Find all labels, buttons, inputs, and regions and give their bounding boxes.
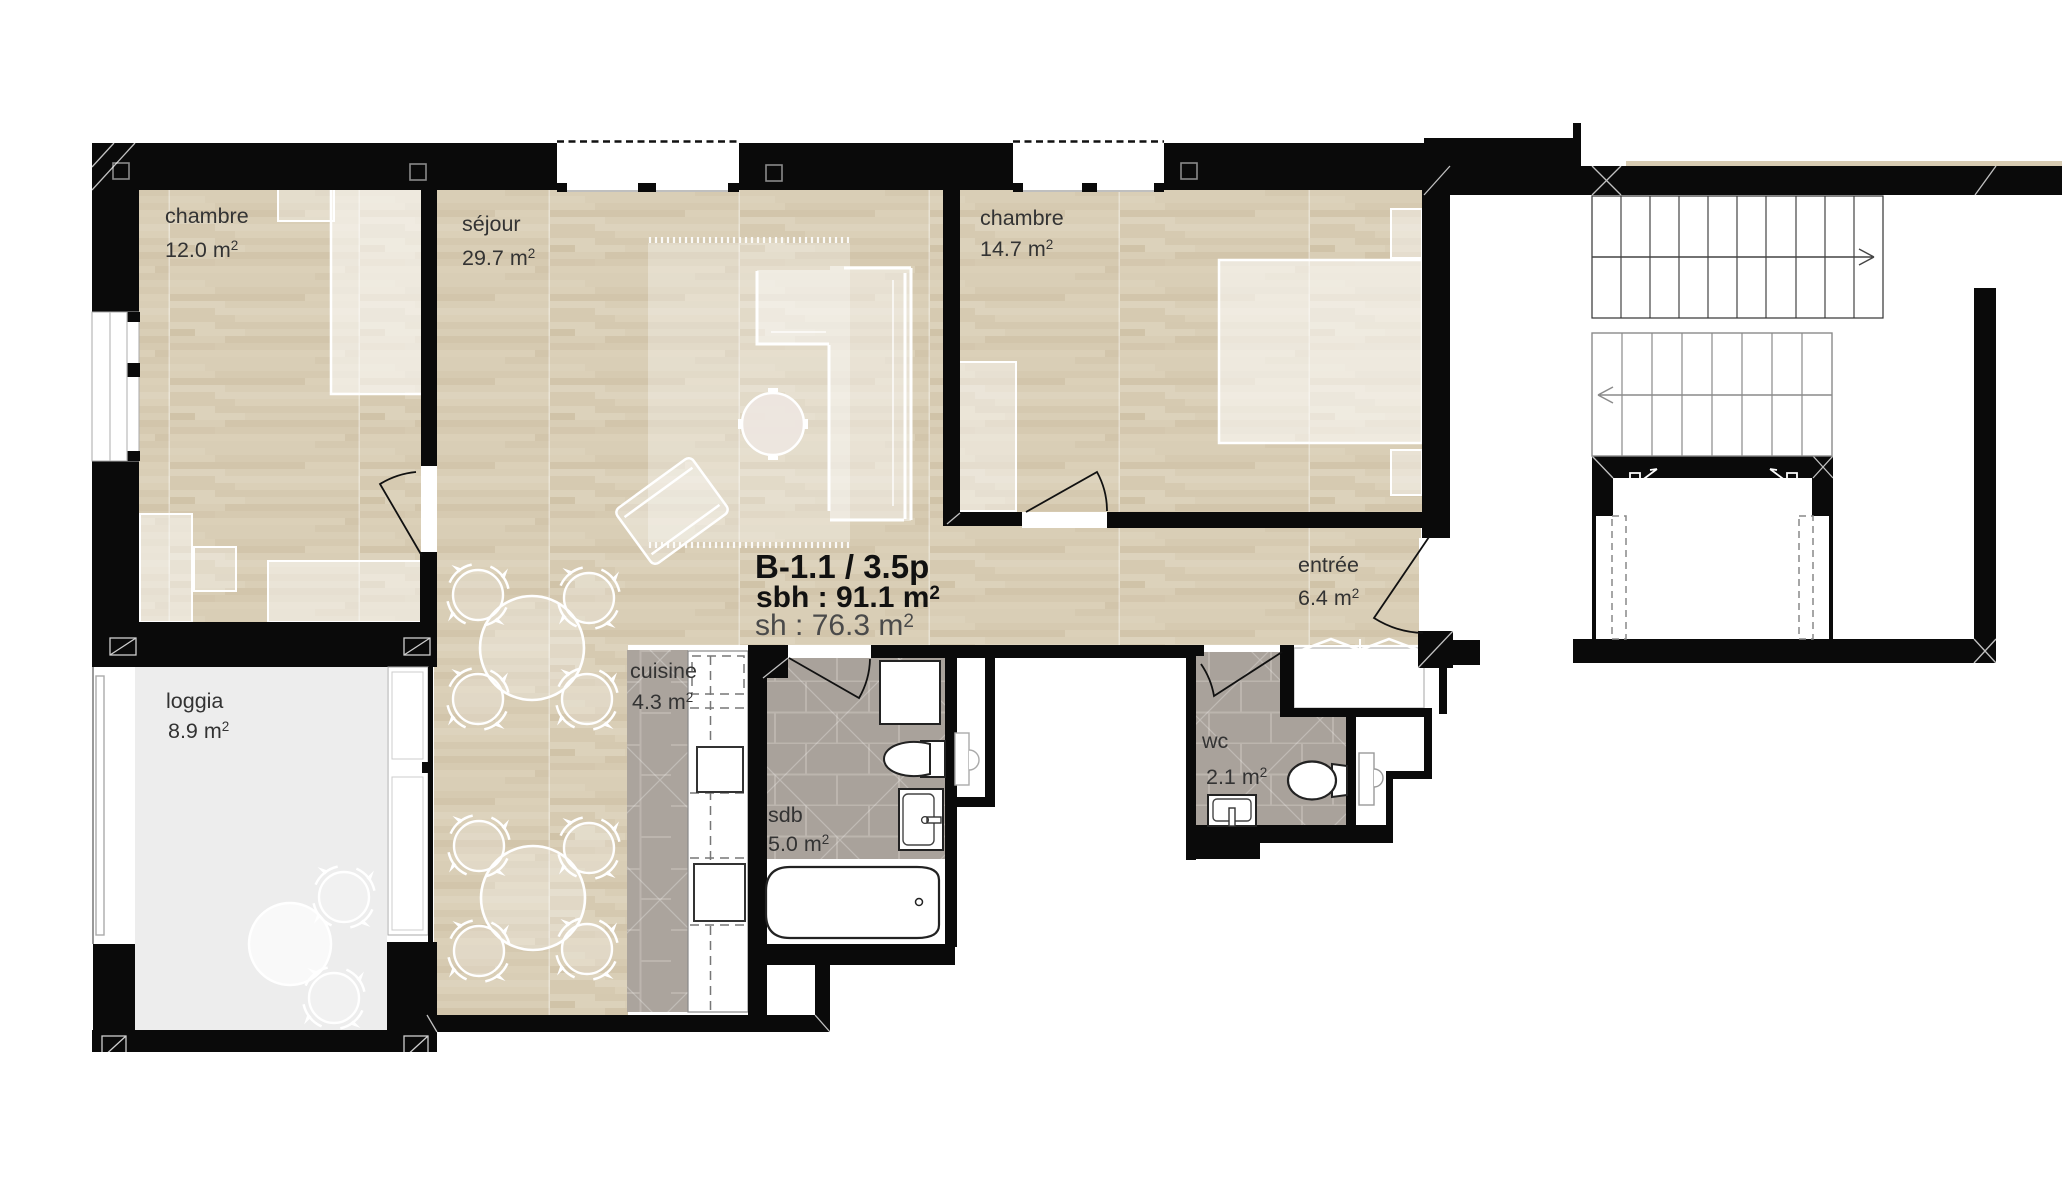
- svg-text:sdb: sdb: [768, 803, 803, 827]
- svg-text:6.4 m2: 6.4 m2: [1298, 586, 1359, 610]
- svg-text:14.7 m2: 14.7 m2: [980, 237, 1053, 261]
- svg-text:chambre: chambre: [165, 204, 249, 228]
- svg-text:sh : 76.3 m2: sh : 76.3 m2: [755, 609, 914, 642]
- svg-text:wc: wc: [1201, 729, 1229, 753]
- svg-text:chambre: chambre: [980, 206, 1064, 230]
- svg-text:12.0 m2: 12.0 m2: [165, 238, 238, 262]
- svg-text:4.3 m2: 4.3 m2: [632, 690, 693, 714]
- svg-text:entrée: entrée: [1298, 553, 1359, 577]
- svg-text:2.1 m2: 2.1 m2: [1206, 765, 1267, 789]
- svg-text:8.9 m2: 8.9 m2: [168, 719, 229, 743]
- svg-text:séjour: séjour: [462, 212, 521, 236]
- svg-text:loggia: loggia: [166, 689, 223, 713]
- svg-text:cuisine: cuisine: [630, 659, 697, 683]
- svg-text:29.7 m2: 29.7 m2: [462, 246, 535, 270]
- svg-text:B-1.1 / 3.5p: B-1.1 / 3.5p: [755, 548, 929, 585]
- svg-text:5.0 m2: 5.0 m2: [768, 832, 829, 856]
